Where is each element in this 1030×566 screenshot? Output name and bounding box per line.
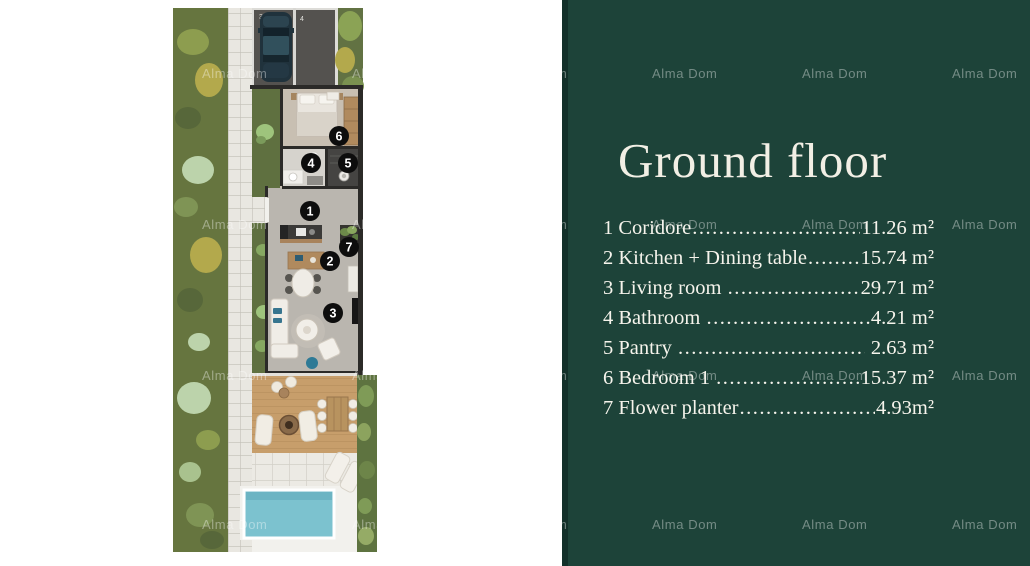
hedge-top-right: [335, 8, 364, 98]
room-area-value: 4.93m²: [876, 393, 934, 423]
room-label: 5 Pantry: [603, 333, 677, 363]
room-area-value: 29.71 m²: [861, 273, 934, 303]
marker-3: 3: [323, 303, 343, 323]
room-area-value: 15.74 m²: [861, 243, 934, 273]
leader-dots: ........................................…: [728, 273, 860, 303]
panel-edge-strip: [562, 0, 568, 566]
car: [258, 12, 294, 82]
marker-7: 7: [339, 237, 359, 257]
listing-page: 3 4: [0, 0, 1030, 566]
room-label: 2 Kitchen + Dining table: [603, 243, 807, 273]
room-label: 3 Living room: [603, 273, 727, 303]
area-list-row: 4 Bathroom .............................…: [603, 303, 934, 333]
parking-spot-label: 4: [300, 16, 304, 23]
svg-text:3: 3: [330, 307, 337, 321]
svg-text:7: 7: [346, 241, 353, 255]
driveway: 3 4: [252, 8, 338, 88]
deck: [252, 373, 358, 453]
room-area-value: 2.63 m²: [866, 333, 934, 363]
leader-dots: ........................................…: [678, 333, 865, 363]
area-list-row: 5 Pantry ...............................…: [603, 333, 934, 363]
room-area-value: 15.37 m²: [861, 363, 934, 393]
hedge-bottom-right: [357, 375, 377, 552]
area-list-row: 1 Coridore..............................…: [603, 213, 934, 243]
outdoor-dining-set: [318, 397, 358, 433]
floor-plan-image: 3 4: [0, 0, 562, 566]
marker-2: 2: [320, 251, 340, 271]
svg-text:2: 2: [327, 255, 334, 269]
marker-5: 5: [338, 153, 358, 173]
info-panel: Ground floor 1 Coridore.................…: [562, 0, 1030, 566]
area-list-row: 2 Kitchen + Dining table................…: [603, 243, 934, 273]
walkway: [228, 8, 252, 552]
room-label: 7 Flower planter: [603, 393, 739, 423]
svg-text:1: 1: [307, 205, 314, 219]
leader-dots: ........................................…: [716, 363, 859, 393]
leader-dots: ........................................…: [707, 303, 870, 333]
marker-4: 4: [301, 153, 321, 173]
garden-left: [173, 8, 228, 552]
area-list: 1 Coridore..............................…: [603, 213, 934, 423]
room-label: 4 Bathroom: [603, 303, 706, 333]
leader-dots: ........................................…: [692, 213, 860, 243]
svg-text:4: 4: [308, 157, 315, 171]
marker-6: 6: [329, 126, 349, 146]
area-list-row: 7 Flower planter........................…: [603, 393, 934, 423]
leader-dots: ........................................…: [740, 393, 876, 423]
room-label: 1 Coridore: [603, 213, 691, 243]
area-list-row: 6 Bedroom 1 ............................…: [603, 363, 934, 393]
room-label: 6 Bedroom 1: [603, 363, 715, 393]
leader-dots: ........................................…: [808, 243, 860, 273]
floor-plan-svg: 3 4: [0, 0, 562, 566]
room-area-value: 4.21 m²: [871, 303, 934, 333]
entry-door: [265, 198, 269, 222]
page-title: Ground floor: [618, 132, 887, 189]
area-list-row: 3 Living room ..........................…: [603, 273, 934, 303]
room-area-value: 11.26 m²: [861, 213, 934, 243]
svg-text:6: 6: [336, 130, 343, 144]
marker-1: 1: [300, 201, 320, 221]
svg-text:5: 5: [345, 157, 352, 171]
